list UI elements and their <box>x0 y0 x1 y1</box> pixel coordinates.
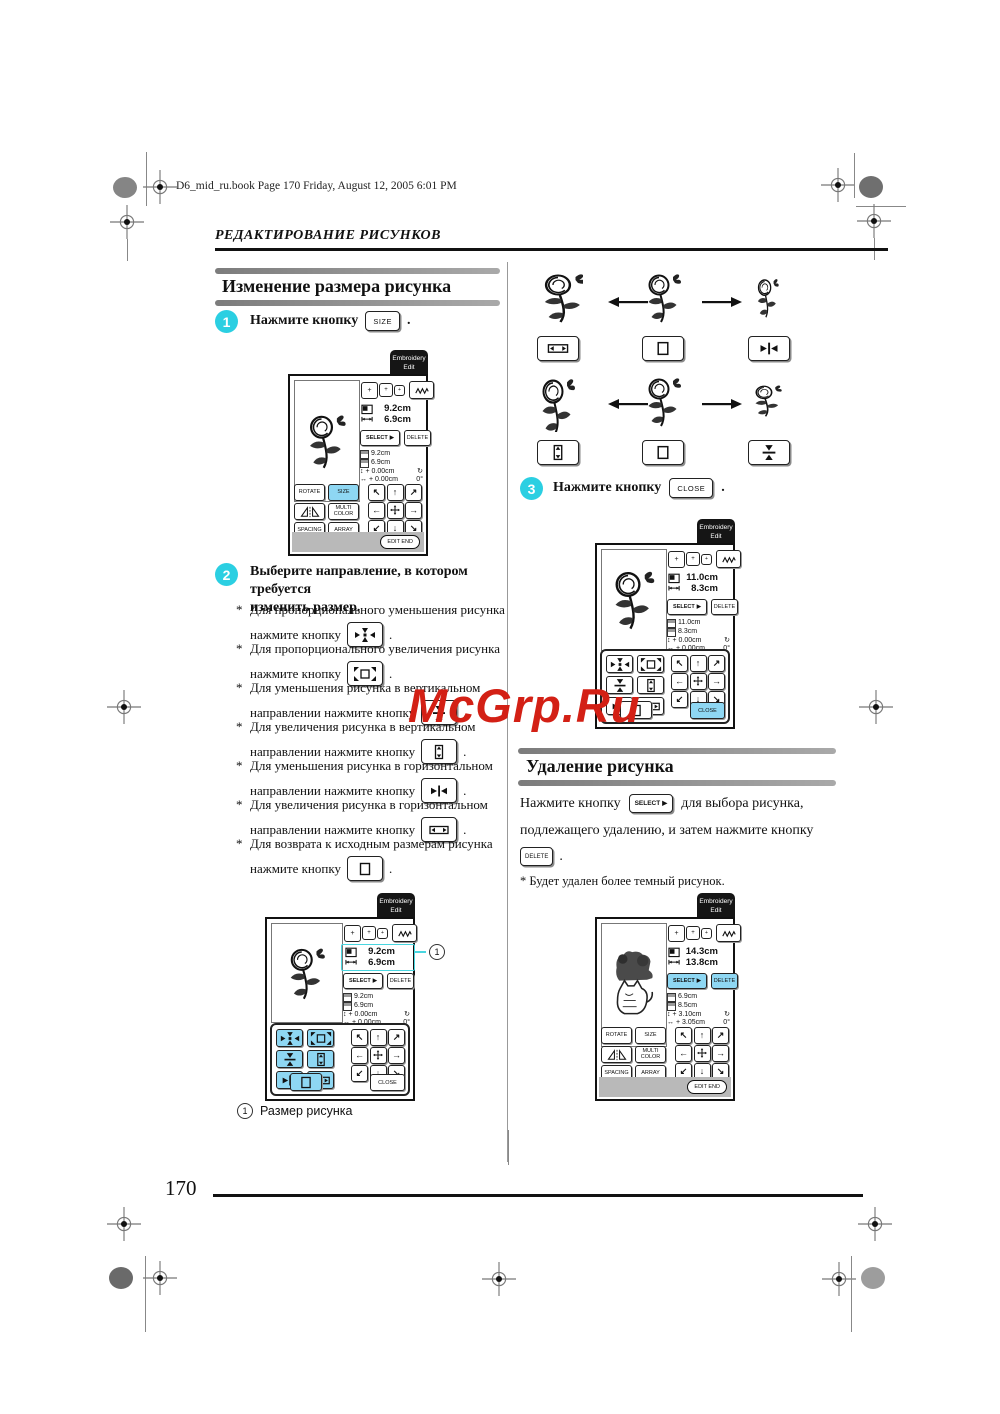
print-file-info: D6_mid_ru.book Page 170 Friday, August 1… <box>176 180 457 192</box>
section-title-resize: Изменение размера рисунка <box>222 276 451 297</box>
manual-page: D6_mid_ru.book Page 170 Friday, August 1… <box>0 0 1000 1414</box>
callout-leader-line <box>414 951 426 953</box>
step3-row: Нажмите кнопку CLOSE . <box>553 478 725 498</box>
reset-size-button <box>642 336 684 361</box>
registration-crosshair-icon <box>143 1261 177 1295</box>
size-display-icon <box>361 404 374 425</box>
step3-period: . <box>721 479 725 497</box>
bottom-bar: EDIT END <box>599 1077 731 1097</box>
size-display-icon <box>345 947 358 968</box>
reset-size-button <box>642 440 684 465</box>
step-number-2: 2 <box>215 563 238 586</box>
vertical-arrow-icon: ↕ <box>667 1011 671 1019</box>
shrink-vertical-button <box>748 440 790 465</box>
move-up-right-button: ↗ <box>708 655 725 672</box>
delete-note: * Будет удален более темный рисунок. <box>520 874 850 889</box>
reset-size-button <box>290 1073 322 1091</box>
hoop-size-indicators: + + + <box>668 924 741 942</box>
size-display: 14.3cm13.8cm <box>668 946 718 968</box>
move-up-right-button: ↗ <box>712 1027 729 1044</box>
pattern-preview <box>271 923 343 1023</box>
stretch-vertical-button <box>537 440 579 465</box>
rose-pattern-image <box>610 569 658 631</box>
select-button: SELECT▶ <box>629 794 674 813</box>
multicolor-button: MULTICOLOR <box>328 503 359 520</box>
watermark: McGrp.Ru <box>408 678 641 733</box>
step1-text: Нажмите кнопку <box>250 312 358 330</box>
shrink-proportional-button <box>606 655 633 673</box>
hoop-medium-icon: + <box>686 926 700 940</box>
reset-size-icon <box>347 856 383 881</box>
width-stat-icon <box>360 459 369 468</box>
stretch-vertical-button <box>307 1050 334 1068</box>
registration-line <box>851 1256 852 1332</box>
hoop-medium-icon: + <box>362 926 376 940</box>
close-button: CLOSE <box>669 478 713 498</box>
mirror-button <box>294 503 325 520</box>
registration-crosshair-icon <box>107 690 141 724</box>
step1-period: . <box>407 312 411 330</box>
move-up-left-button: ↖ <box>368 484 385 501</box>
registration-crosshair-icon <box>821 168 855 202</box>
step1-row: Нажмите кнопку SIZE . <box>250 311 410 331</box>
size-button: SIZE <box>635 1027 666 1044</box>
arrow-left-icon <box>608 296 648 308</box>
rotate-button: ROTATE <box>294 484 325 501</box>
machine-icon <box>716 924 741 942</box>
rose-normal-image <box>644 272 684 324</box>
rose-narrow-image <box>755 272 787 324</box>
move-down-left-button: ↙ <box>671 691 688 708</box>
hoop-large-icon: + <box>344 925 361 942</box>
move-center-icon <box>387 502 404 519</box>
rose-tall-image <box>538 372 578 432</box>
rose-normal-image <box>644 376 684 428</box>
move-center-icon <box>694 1045 711 1062</box>
pattern-preview <box>601 549 667 651</box>
screen-size-panel: EmbroideryEdit + + + 9.2cm6.9cm SELECT▶ … <box>265 893 415 1097</box>
figure-caption: 1 Размер рисунка <box>237 1103 352 1119</box>
footer-rule <box>213 1194 863 1197</box>
shrink-horizontal-button <box>748 336 790 361</box>
section-title-delete: Удаление рисунка <box>526 756 674 777</box>
hoop-large-icon: + <box>668 551 685 568</box>
move-left-button: ← <box>671 673 688 690</box>
machine-icon <box>392 924 417 942</box>
bottom-bar: EDIT END <box>292 532 424 552</box>
mirror-icon <box>299 506 321 518</box>
function-buttons: ROTATE SIZE MULTICOLOR SPACING ARRAY <box>601 1027 666 1082</box>
vertical-arrow-icon: ↕ <box>360 468 364 476</box>
arrow-left-icon <box>608 398 648 410</box>
move-right-button: → <box>708 673 725 690</box>
hoop-large-icon: + <box>668 925 685 942</box>
hoop-small-icon: + <box>377 928 388 939</box>
registration-crosshair-icon <box>859 690 893 724</box>
move-left-button: ← <box>351 1047 368 1064</box>
registration-dot <box>109 1267 133 1289</box>
horizontal-arrow-icon: ↔ <box>360 476 367 484</box>
function-buttons: ROTATE SIZE MULTICOLOR SPACING ARRAY <box>294 484 359 539</box>
step-number-3: 3 <box>520 477 543 500</box>
screen-delete-select: EmbroideryEdit + + + 14.3cm13.8cm SELECT… <box>595 893 735 1097</box>
move-arrow-pad: ↖ ↑ ↗ ← → ↙ ↓ ↘ <box>671 655 725 708</box>
mirror-button <box>601 1046 632 1063</box>
multicolor-button: MULTICOLOR <box>635 1046 666 1063</box>
height-stat-icon <box>667 619 676 628</box>
section-bar <box>518 748 836 754</box>
arrow-right-icon <box>702 296 742 308</box>
hoop-size-indicators: + + + <box>361 381 434 399</box>
delete-button: DELETE <box>520 847 553 866</box>
registration-dot <box>113 177 137 198</box>
size-button: SIZE <box>365 311 400 331</box>
edit-end-button: EDIT END <box>380 535 420 549</box>
select-button: SELECT▶ <box>667 599 707 615</box>
status-readout: 9.2cm 6.9cm ↕+ 0.00cm↻ ↔+ 0.00cm0° <box>360 450 423 485</box>
move-up-button: ↑ <box>370 1029 387 1046</box>
bullet-shrink-proportional: * Для пропорционального уменьшения рисун… <box>250 602 510 640</box>
move-up-left-button: ↖ <box>351 1029 368 1046</box>
move-up-left-button: ↖ <box>671 655 688 672</box>
move-up-button: ↑ <box>387 484 404 501</box>
select-button: SELECT▶ <box>360 430 400 446</box>
section-bar <box>215 300 500 306</box>
move-up-right-button: ↗ <box>388 1029 405 1046</box>
hoop-small-icon: + <box>701 554 712 565</box>
move-up-right-button: ↗ <box>405 484 422 501</box>
size-display-icon <box>668 947 681 968</box>
caption-label: Размер рисунка <box>260 1104 352 1118</box>
close-button: CLOSE <box>370 1074 405 1091</box>
section-bar <box>215 268 500 274</box>
step3-text: Нажмите кнопку <box>553 479 661 497</box>
move-center-icon <box>370 1047 387 1064</box>
enlarge-proportional-button <box>307 1029 334 1047</box>
registration-line <box>854 153 855 198</box>
registration-line <box>508 1130 509 1165</box>
move-up-button: ↑ <box>694 1027 711 1044</box>
status-readout: 6.9cm 8.5cm ↕+ 3.10cm↻ ↔+ 3.05cm0° <box>667 993 730 1028</box>
height-stat-icon <box>667 993 676 1002</box>
callout-number: 1 <box>429 944 445 960</box>
hoop-size-indicators: + + + <box>344 924 417 942</box>
bullet-shrink-horizontal: * Для уменьшения рисунка в горизонтально… <box>250 758 510 796</box>
enlarge-proportional-button <box>637 655 664 673</box>
size-display-icon <box>668 573 681 594</box>
hoop-medium-icon: + <box>686 552 700 566</box>
registration-crosshair-icon <box>857 204 891 238</box>
rose-pattern-image <box>286 946 328 1001</box>
step-number-1: 1 <box>215 310 238 333</box>
shrink-proportional-button <box>276 1029 303 1047</box>
horizontal-arrow-icon: ↔ <box>667 1019 674 1027</box>
move-up-button: ↑ <box>690 655 707 672</box>
move-up-left-button: ↖ <box>675 1027 692 1044</box>
width-stat-icon <box>343 1002 352 1011</box>
select-button: SELECT▶ <box>343 973 383 989</box>
close-button-active: CLOSE <box>690 702 725 719</box>
move-right-button: → <box>405 502 422 519</box>
height-stat-icon <box>360 450 369 459</box>
select-button-active: SELECT▶ <box>667 973 707 989</box>
bullet-enlarge-proportional: * Для пропорционального увеличения рисун… <box>250 641 510 679</box>
stretch-horizontal-button <box>537 336 579 361</box>
rose-wide-image <box>533 272 583 324</box>
size-display: 9.2cm6.9cm <box>361 403 411 425</box>
mirror-icon <box>606 1049 628 1061</box>
size-button-active: SIZE <box>328 484 359 501</box>
hoop-small-icon: + <box>701 928 712 939</box>
registration-dot <box>861 1267 885 1289</box>
bullet-stretch-horizontal: * Для увеличения рисунка в горизонтально… <box>250 797 510 835</box>
hoop-large-icon: + <box>361 382 378 399</box>
chapter-header: РЕДАКТИРОВАНИЕ РИСУНКОВ <box>215 228 441 244</box>
delete-paragraph: Нажмите кнопку SELECT▶ для выбора рисунк… <box>520 794 850 889</box>
edit-end-button: EDIT END <box>687 1080 727 1094</box>
stretch-vertical-button <box>637 676 664 694</box>
caption-number: 1 <box>237 1103 253 1119</box>
move-right-button: → <box>388 1047 405 1064</box>
size-display: 9.2cm6.9cm <box>345 946 395 968</box>
move-arrow-pad: ↖ ↑ ↗ ← → ↙ ↓ ↘ <box>675 1027 729 1080</box>
rotate-button: ROTATE <box>601 1027 632 1044</box>
registration-crosshair-icon <box>858 1207 892 1241</box>
section-bar <box>518 780 836 786</box>
move-center-icon <box>690 673 707 690</box>
height-stat-icon <box>343 993 352 1002</box>
delete-button: DELETE <box>711 599 738 615</box>
registration-crosshair-icon <box>107 1207 141 1241</box>
move-right-button: → <box>712 1045 729 1062</box>
size-button-panel: ↖ ↑ ↗ ← → ↙ ↓ ↘ CLOSE <box>270 1023 410 1096</box>
delete-button-active: DELETE <box>711 973 738 989</box>
dogs-and-cat-pattern-image <box>608 948 660 1022</box>
hoop-small-icon: + <box>394 385 405 396</box>
delete-button: DELETE <box>387 973 414 989</box>
width-stat-icon <box>667 628 676 637</box>
machine-icon <box>716 550 741 568</box>
hoop-size-indicators: + + + <box>668 550 741 568</box>
screen-edit-initial: EmbroideryEdit + + + 9.2cm6.9cm SELECT▶ … <box>288 350 428 552</box>
registration-dot <box>859 176 883 198</box>
rose-short-image <box>748 384 788 426</box>
machine-icon <box>409 381 434 399</box>
registration-crosshair-icon <box>143 170 177 204</box>
arrow-right-icon <box>702 398 742 410</box>
move-down-left-button: ↙ <box>351 1065 368 1082</box>
delete-button: DELETE <box>404 430 431 446</box>
move-left-button: ← <box>675 1045 692 1062</box>
shrink-vertical-button <box>276 1050 303 1068</box>
hoop-medium-icon: + <box>379 383 393 397</box>
registration-crosshair-icon <box>110 205 144 239</box>
page-number: 170 <box>165 1176 197 1201</box>
size-display: 11.0cm8.3cm <box>668 572 718 594</box>
move-arrow-pad: ↖ ↑ ↗ ← → ↙ ↓ ↘ <box>368 484 422 537</box>
vertical-arrow-icon: ↕ <box>667 637 671 645</box>
registration-line <box>127 239 128 261</box>
header-rule <box>215 248 888 251</box>
rose-pattern-image <box>305 413 349 470</box>
vertical-arrow-icon: ↕ <box>343 1011 347 1019</box>
bullet-reset-size: * Для возврата к исходным размерам рисун… <box>250 836 510 874</box>
width-stat-icon <box>667 1002 676 1011</box>
registration-crosshair-icon <box>482 1262 516 1296</box>
move-left-button: ← <box>368 502 385 519</box>
